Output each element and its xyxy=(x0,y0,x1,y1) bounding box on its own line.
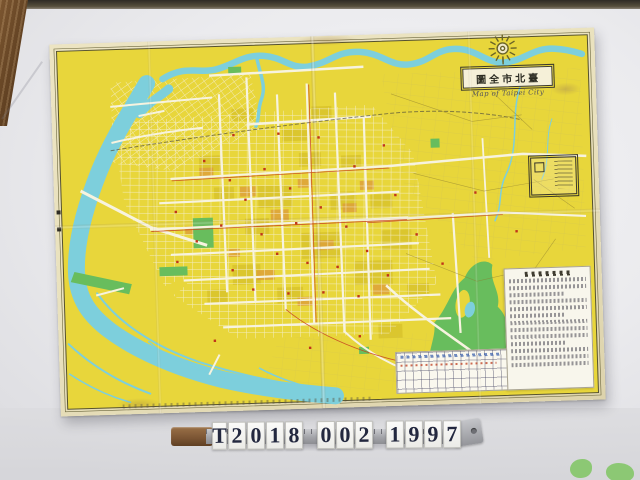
inset-text-lines xyxy=(554,160,573,189)
inset-symbol xyxy=(534,162,544,172)
index-row xyxy=(510,313,565,319)
green-leaf-mark xyxy=(606,463,634,480)
index-row xyxy=(510,319,587,325)
index-row xyxy=(509,292,564,298)
index-row xyxy=(511,347,588,353)
index-row xyxy=(512,361,589,367)
margin-tick xyxy=(57,227,61,231)
index-row xyxy=(511,341,566,347)
table-blue-row xyxy=(400,353,500,359)
margin-tick xyxy=(57,210,61,214)
index-row xyxy=(510,305,587,311)
table-red-row xyxy=(401,362,497,367)
index-row xyxy=(510,298,587,304)
index-row xyxy=(511,333,588,339)
index-row xyxy=(510,326,587,332)
compass-rose-icon xyxy=(484,31,521,68)
index-row xyxy=(509,284,586,290)
street-index-panel xyxy=(504,266,595,391)
route-table-panel xyxy=(395,348,508,393)
photo-of-map: 圖全市北臺 Map of Taipei City xyxy=(0,0,640,480)
index-row xyxy=(511,354,588,360)
map-title: 圖全市北臺 xyxy=(476,69,541,86)
map-title-cartouche: 圖全市北臺 xyxy=(462,66,553,89)
map-sheet: 圖全市北臺 Map of Taipei City xyxy=(49,28,605,417)
inset-legend-box xyxy=(530,156,577,195)
index-row xyxy=(509,277,586,283)
street-index-header xyxy=(524,270,570,276)
table-edge xyxy=(0,0,640,9)
green-leaf-mark xyxy=(570,459,592,478)
